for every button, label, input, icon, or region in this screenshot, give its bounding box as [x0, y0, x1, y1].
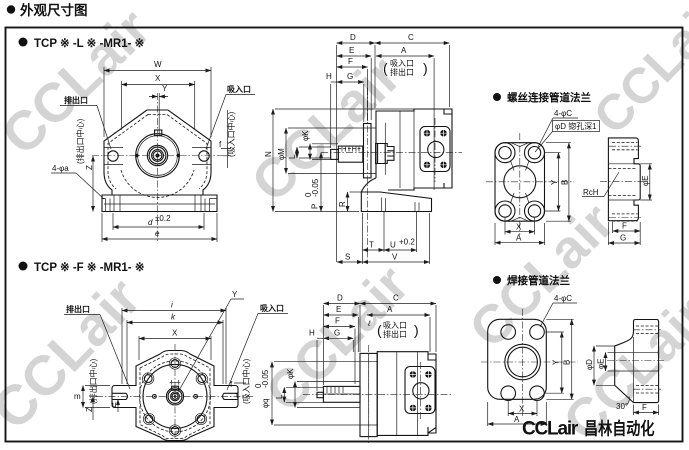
svg-text:u: u: [112, 400, 116, 409]
svg-text:螺丝连接管道法兰: 螺丝连接管道法兰: [507, 91, 591, 104]
svg-text:L: L: [288, 154, 297, 159]
svg-text:焊接管道法兰: 焊接管道法兰: [507, 274, 570, 287]
svg-text:A: A: [387, 305, 393, 314]
svg-text:φD: φD: [585, 359, 594, 370]
svg-text:): ): [423, 60, 428, 76]
svg-text:Y: Y: [232, 290, 238, 299]
svg-text:(吸入口中心): (吸入口中心): [241, 358, 251, 404]
svg-text:ℓ: ℓ: [367, 319, 371, 328]
svg-text:Y: Y: [552, 359, 561, 365]
svg-text:-0.05: -0.05: [261, 369, 270, 388]
svg-text:Z: Z: [85, 407, 94, 412]
svg-text:B: B: [561, 180, 570, 185]
svg-text:A: A: [401, 46, 407, 55]
svg-text:F: F: [348, 57, 353, 66]
svg-text:吸入口: 吸入口: [227, 85, 251, 94]
svg-text:φq: φq: [261, 398, 270, 408]
svg-text:F: F: [622, 222, 627, 231]
svg-text:X: X: [155, 74, 161, 83]
svg-text:m: m: [74, 392, 81, 401]
svg-text:G: G: [347, 72, 353, 81]
svg-text:d: d: [148, 218, 153, 227]
svg-text:±0.2: ±0.2: [155, 214, 171, 223]
svg-text:吸入口: 吸入口: [260, 304, 284, 313]
svg-text:排出口: 排出口: [66, 304, 90, 314]
svg-text:E: E: [336, 305, 341, 314]
svg-text:TCP ※ -F ※ -MR1- ※: TCP ※ -F ※ -MR1- ※: [34, 261, 145, 274]
svg-text:T: T: [369, 241, 374, 250]
svg-text:4-φa: 4-φa: [52, 164, 69, 173]
svg-text:Y: Y: [550, 179, 559, 185]
svg-text:N: N: [264, 151, 273, 157]
svg-text:(: (: [377, 322, 382, 338]
svg-text:X: X: [519, 405, 525, 414]
svg-text:4-φC: 4-φC: [554, 294, 572, 303]
svg-text:E: E: [349, 46, 354, 55]
svg-text:φE: φE: [597, 358, 606, 369]
svg-text:Y: Y: [162, 84, 168, 93]
svg-text:昌林自动化: 昌林自动化: [584, 418, 655, 439]
svg-text:e: e: [155, 229, 160, 238]
svg-text:排出口: 排出口: [390, 67, 414, 77]
svg-text:RcH: RcH: [583, 188, 599, 197]
svg-text:P: P: [311, 204, 320, 209]
svg-text:吸入口: 吸入口: [383, 321, 407, 330]
svg-text:D: D: [350, 33, 356, 42]
svg-text:X: X: [172, 329, 178, 338]
svg-text:φD 锪孔深1: φD 锪孔深1: [555, 121, 597, 131]
svg-text:): ): [414, 322, 419, 338]
svg-text:C: C: [408, 33, 414, 42]
svg-text:-0.05: -0.05: [311, 178, 320, 197]
svg-text:U: U: [390, 241, 396, 250]
svg-text:排出口: 排出口: [383, 329, 407, 339]
svg-text:φM: φM: [277, 148, 286, 160]
svg-text:Z: Z: [85, 165, 94, 170]
svg-text:G: G: [620, 234, 626, 243]
svg-text:φK: φK: [301, 130, 310, 141]
svg-text:(排出口中心): (排出口中心): [75, 118, 85, 164]
svg-text:H: H: [326, 72, 332, 81]
svg-text:F: F: [642, 403, 647, 412]
svg-text:A: A: [516, 234, 522, 243]
svg-text:V: V: [392, 253, 398, 262]
svg-text:外观尺寸图: 外观尺寸图: [20, 2, 88, 18]
svg-text:4-φC: 4-φC: [554, 109, 572, 118]
svg-text:CCLair: CCLair: [522, 419, 579, 440]
svg-text:A: A: [514, 415, 520, 424]
svg-text:+0.2: +0.2: [399, 238, 415, 247]
svg-text:i: i: [171, 301, 173, 310]
svg-text:H: H: [309, 328, 315, 337]
svg-text:B: B: [563, 360, 572, 365]
svg-text:φE: φE: [641, 175, 650, 186]
svg-text:(: (: [383, 60, 388, 76]
svg-text:D: D: [337, 294, 343, 303]
svg-text:G: G: [334, 328, 340, 337]
svg-text:S: S: [345, 253, 350, 262]
svg-text:30°: 30°: [616, 402, 628, 411]
svg-text:C: C: [393, 294, 399, 303]
svg-text:R: R: [338, 201, 347, 207]
svg-text:吸入口: 吸入口: [390, 59, 414, 68]
svg-text:TCP ※ -L ※ -MR1- ※: TCP ※ -L ※ -MR1- ※: [34, 37, 145, 50]
svg-text:X: X: [516, 223, 522, 232]
svg-text:L: L: [275, 394, 284, 399]
svg-text:F: F: [335, 317, 340, 326]
svg-text:W: W: [154, 60, 162, 69]
svg-text:排出口: 排出口: [64, 95, 88, 105]
svg-text:φK: φK: [286, 368, 295, 379]
